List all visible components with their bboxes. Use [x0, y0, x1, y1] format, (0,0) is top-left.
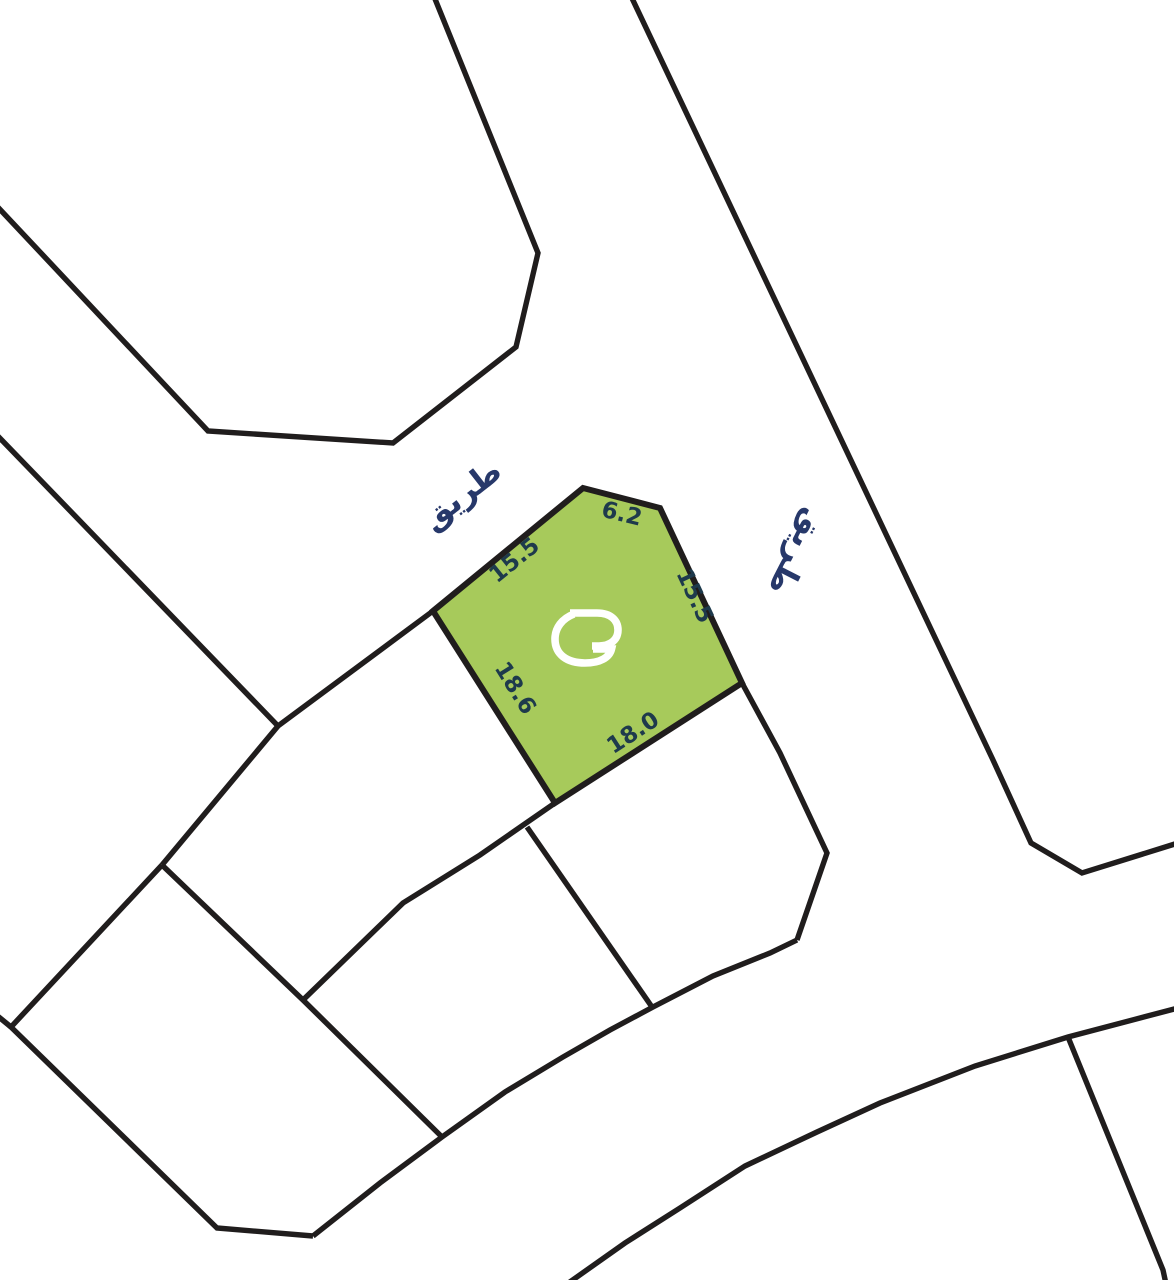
boundary-line-left-stub [0, 1013, 11, 1027]
road-label-upper: طريق [414, 451, 509, 537]
boundary-line-middle-divider [527, 827, 652, 1007]
boundary-line-south-extension [303, 803, 555, 1000]
boundary-line-pointy-parcel [742, 683, 827, 940]
boundary-line-bottomright-divider [1068, 1037, 1166, 1280]
road-edge-line-lower-arc [313, 940, 797, 1236]
road-edge-line-east-diagonal [630, 0, 1174, 873]
road-label-right: طريق [760, 504, 835, 602]
road-edge-line-bottomright-arc [567, 1008, 1174, 1280]
cadastral-map-stage: 15.5 6.2 15.5 18.6 18.0 طريق طريق [0, 0, 1174, 1280]
road-edge-line-upper-road [0, 432, 278, 726]
boundary-line-bottomleft [11, 865, 313, 1236]
cadastral-map: 15.5 6.2 15.5 18.6 18.0 طريق طريق [0, 0, 1174, 1280]
boundary-line-topleft-parcel [0, 0, 538, 443]
selected-parcel[interactable] [433, 488, 742, 803]
